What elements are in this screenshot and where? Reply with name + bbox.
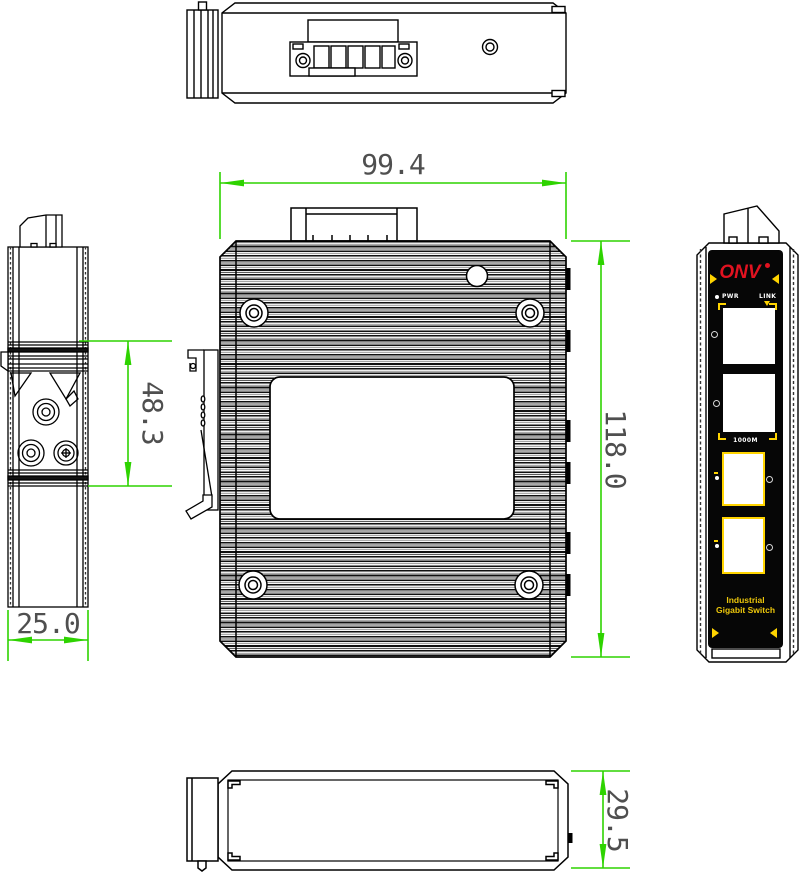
case-screw — [515, 571, 543, 599]
bottom-view — [187, 771, 573, 871]
case-screw — [240, 299, 268, 327]
rj45-port-2 — [722, 517, 765, 574]
dimension-value-depth: 29.5 — [601, 788, 634, 851]
line-art-layer: 99.4 118.0 48.3 — [0, 0, 801, 876]
label-recess — [270, 377, 514, 519]
product-name-line2: Gigabit Switch — [708, 605, 783, 615]
din-clip-bottom — [187, 778, 218, 871]
panel-arrow-left-icon — [772, 274, 779, 284]
din-clip-end-view — [187, 2, 218, 98]
port2-link-led — [766, 544, 773, 551]
case-screw — [516, 299, 544, 327]
front-panel: ONV PWR LINK 1000M Industrial Gigabit Sw… — [708, 250, 783, 648]
product-name-line1: Industrial — [708, 595, 783, 605]
port1-led-mark — [714, 472, 718, 474]
terminal-block-top — [290, 20, 417, 76]
brand-trademark-dot-icon — [765, 263, 770, 268]
pwr-label: PWR — [722, 293, 739, 300]
panel-arrow-left-icon — [770, 628, 777, 638]
sfp1-led — [711, 331, 718, 338]
port2-led — [715, 544, 719, 548]
speed-label: 1000M — [708, 437, 783, 444]
sfp-port-2 — [723, 374, 775, 432]
dimension-body-height: 118.0 — [571, 241, 632, 657]
dimension-side-width: 25.0 — [8, 607, 88, 661]
dimension-value-side: 25.0 — [16, 607, 80, 640]
terminal-block-side — [20, 215, 62, 247]
top-view — [187, 2, 566, 103]
brand-logo: ONV — [708, 262, 772, 284]
rj45-port-1 — [722, 452, 765, 506]
side-port-marks — [567, 268, 571, 596]
left-side-view — [1, 215, 88, 607]
dimension-value-din: 48.3 — [136, 381, 169, 444]
mounting-screw — [54, 441, 78, 465]
dimension-body-depth: 29.5 — [571, 771, 634, 868]
port1-led — [715, 476, 719, 480]
dimension-value-height: 118.0 — [599, 409, 632, 488]
din-clip-profile — [186, 350, 218, 519]
vent-hole — [467, 266, 488, 287]
rear-view — [186, 208, 571, 657]
case-screw — [239, 571, 267, 599]
link-label: LINK — [759, 293, 776, 300]
sfp-port-1 — [723, 308, 775, 364]
bottom-strip — [712, 649, 780, 658]
pwr-led — [715, 295, 719, 299]
terminal-block-rear — [291, 208, 417, 241]
terminal-block-front — [724, 206, 779, 243]
port2-led-mark — [714, 540, 718, 542]
technical-drawing-industrial-switch: 99.4 118.0 48.3 — [0, 0, 801, 876]
panel-arrow-right-icon — [712, 628, 719, 638]
port1-link-led — [766, 476, 773, 483]
sfp2-led — [713, 400, 720, 407]
dimension-value-width: 99.4 — [361, 148, 425, 181]
dimension-din-height: 48.3 — [79, 341, 172, 486]
